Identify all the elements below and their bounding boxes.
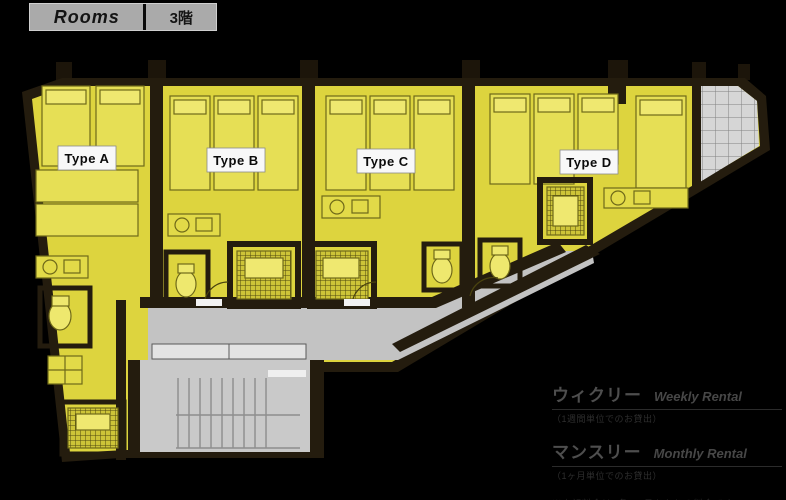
- svg-text:Type B: Type B: [213, 153, 258, 168]
- stair-door-gap: [268, 370, 306, 377]
- weekly-rental-en: Weekly Rental: [654, 389, 742, 404]
- monthly-rental-en: Monthly Rental: [654, 446, 747, 461]
- room-label-a: Type A: [58, 146, 116, 170]
- weekly-rental-jp: ウィクリー: [552, 381, 642, 406]
- wall-pillars: [56, 60, 750, 80]
- svg-text:Type D: Type D: [566, 155, 611, 170]
- staircase: [128, 344, 324, 452]
- rental-legend: ウィクリー Weekly Rental （1週間単位でのお貸出） マンスリー M…: [552, 381, 782, 500]
- svg-text:Type A: Type A: [65, 151, 110, 166]
- monthly-rental-note: （1ヶ月単位でのお貸出）: [552, 469, 782, 482]
- room-label-d: Type D: [560, 150, 618, 174]
- weekly-rental-block: ウィクリー Weekly Rental （1週間単位でのお貸出）: [552, 381, 782, 425]
- legend-footnote: ※上記料金は1名1ヶ月あたりの料金です: [552, 496, 782, 500]
- weekly-rental-note: （1週間単位でのお貸出）: [552, 412, 782, 425]
- room-label-c: Type C: [357, 149, 415, 173]
- floorplan-page: Rooms 3階: [0, 0, 786, 500]
- monthly-rental-jp: マンスリー: [552, 438, 642, 463]
- room-label-b: Type B: [207, 148, 265, 172]
- monthly-rental-block: マンスリー Monthly Rental （1ヶ月単位でのお貸出）: [552, 438, 782, 482]
- svg-text:Type C: Type C: [363, 154, 408, 169]
